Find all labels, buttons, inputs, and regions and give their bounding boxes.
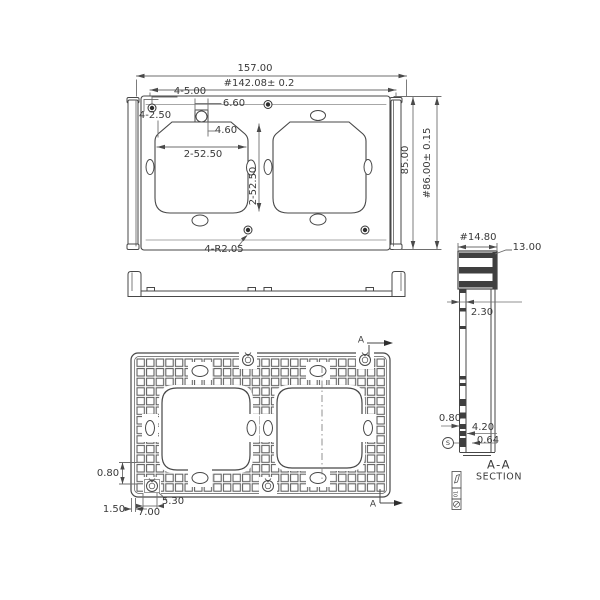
dim-holes-corner: 4-2.50 <box>139 111 171 121</box>
side-view-right-cap <box>392 272 405 297</box>
bottom-view-cutout-left <box>162 388 250 470</box>
dim-boss-hole: 5.30 <box>162 497 184 507</box>
dim-boss-height: 4.20 <box>472 423 494 433</box>
dim-overall-height: 85.00 <box>401 146 411 175</box>
side-view-left-cap <box>128 272 141 297</box>
surface-mark-letter: S <box>446 440 450 447</box>
bottom-view-cutout-right <box>277 388 362 468</box>
revision-marker: 01 <box>454 490 459 496</box>
drawing-svg <box>0 0 600 600</box>
dim-cutout-width: 2-52.50 <box>184 150 223 160</box>
dim-mounting-height: #86.00± 0.15 <box>423 128 433 199</box>
bottom-view <box>119 340 403 512</box>
dim-rib-thickness: 0.80 <box>97 469 119 479</box>
dim-tab-width: 6.60 <box>223 99 245 109</box>
dim-rail-width: #14.80 <box>459 233 496 243</box>
top-view-cutout-right <box>273 122 366 213</box>
dim-tab-hole: 4.60 <box>215 126 237 136</box>
section-title: A-A <box>487 459 511 471</box>
dim-wall-thickness: 1.50 <box>103 505 125 515</box>
top-view-left-rail <box>127 98 139 250</box>
dim-rib-thick: 0.80 <box>439 414 461 424</box>
dim-overall-width: 157.00 <box>238 64 273 74</box>
dim-boss-gap: 0.64 <box>477 436 499 446</box>
dim-cutout-pitch: 2-52.50 <box>249 167 259 206</box>
dim-fillet-radius: 4-R2.05 <box>204 245 243 255</box>
engineering-drawing-page: 157.00 #142.08± 0.2 4-5.00 4-2.50 6.60 4… <box>0 0 600 600</box>
section-label-a-top: A <box>358 337 364 346</box>
section-label-a-bottom: A <box>370 501 376 510</box>
dim-wall-thick: 2.30 <box>471 308 493 318</box>
side-view <box>128 272 405 297</box>
dim-mounting-width: #142.08± 0.2 <box>224 79 295 89</box>
top-view <box>127 74 441 250</box>
dim-rail-height: 13.00 <box>513 243 542 253</box>
dim-boss-width: 7.00 <box>138 508 160 518</box>
dim-holes-top: 4-5.00 <box>174 87 206 97</box>
section-subtitle: SECTION <box>476 472 522 482</box>
side-view-bar <box>141 291 392 297</box>
